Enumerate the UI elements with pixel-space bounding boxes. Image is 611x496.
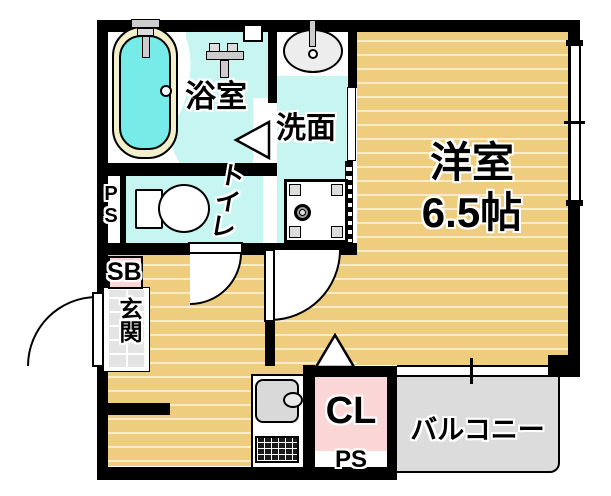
shower-mixer-knob-left xyxy=(209,43,220,52)
shower-mixer-icon xyxy=(206,51,244,60)
entrance-label: 玄関 xyxy=(112,297,146,343)
wall-kitchen-closet xyxy=(303,365,315,467)
toilet-icon xyxy=(158,184,210,233)
washroom-label: 洗面 xyxy=(276,103,336,147)
balcony-label: バルコニー xyxy=(400,408,555,447)
wall-corner-southeast xyxy=(548,355,580,377)
balcony-window-center-tick xyxy=(470,358,473,384)
bathroom-label: 浴室 xyxy=(185,71,247,116)
pipe-space-bottom-label: PS xyxy=(315,446,387,474)
bath-faucet-stem xyxy=(142,36,150,58)
right-window-cap-top xyxy=(566,40,583,46)
wall-kitchen-stub xyxy=(108,403,170,415)
washing-pan-corner-bl xyxy=(289,226,301,238)
washbasin-faucet xyxy=(309,20,316,47)
bathroom-door-triangle xyxy=(233,119,271,161)
washing-pan-corner-br xyxy=(331,226,343,238)
shower-mixer-knob-right xyxy=(227,43,238,52)
western-room-door-leaf xyxy=(264,249,275,322)
shoe-box-label: SB xyxy=(107,258,142,287)
gas-stove-icon xyxy=(255,436,299,463)
washing-pan-corner-tr xyxy=(331,184,343,196)
wall-closet-balcony xyxy=(387,366,397,467)
washing-pan-corner-tl xyxy=(289,184,301,196)
kitchen-faucet-icon xyxy=(283,392,303,408)
western-room-size: 6.5帖 xyxy=(422,189,522,236)
right-window-cap-bottom xyxy=(566,200,583,206)
right-wall-window xyxy=(569,45,581,203)
closet-door-triangle xyxy=(314,333,356,369)
wall-hall-room-lower xyxy=(265,322,275,366)
bath-faucet-body xyxy=(137,28,154,36)
closet-label: CL xyxy=(315,390,387,433)
bathroom-window xyxy=(243,24,263,42)
entrance-door-swing-arc xyxy=(27,296,97,366)
wall-bath-washroom xyxy=(268,31,277,103)
toilet-door-leaf xyxy=(188,242,243,254)
pipe-space-left-label: PS xyxy=(99,183,122,227)
washing-pan-drain-inner xyxy=(299,209,306,216)
wall-top xyxy=(97,20,580,32)
western-room-name: 洋室 xyxy=(430,139,514,186)
bath-faucet-icon xyxy=(131,19,160,28)
right-window-center-tick xyxy=(564,121,585,124)
floor-plan: 浴室 洗面 トイレ PS SB 玄関 洋室 6.5帖 CL PS バルコニー xyxy=(0,0,611,496)
washroom-door-leaf xyxy=(347,87,356,161)
wall-washroom-room-upper xyxy=(348,31,357,88)
western-room-label: 洋室 6.5帖 xyxy=(382,138,562,238)
wall-left xyxy=(97,20,108,480)
bathtub-knob-icon xyxy=(160,85,172,97)
washbasin-drain xyxy=(308,49,318,59)
